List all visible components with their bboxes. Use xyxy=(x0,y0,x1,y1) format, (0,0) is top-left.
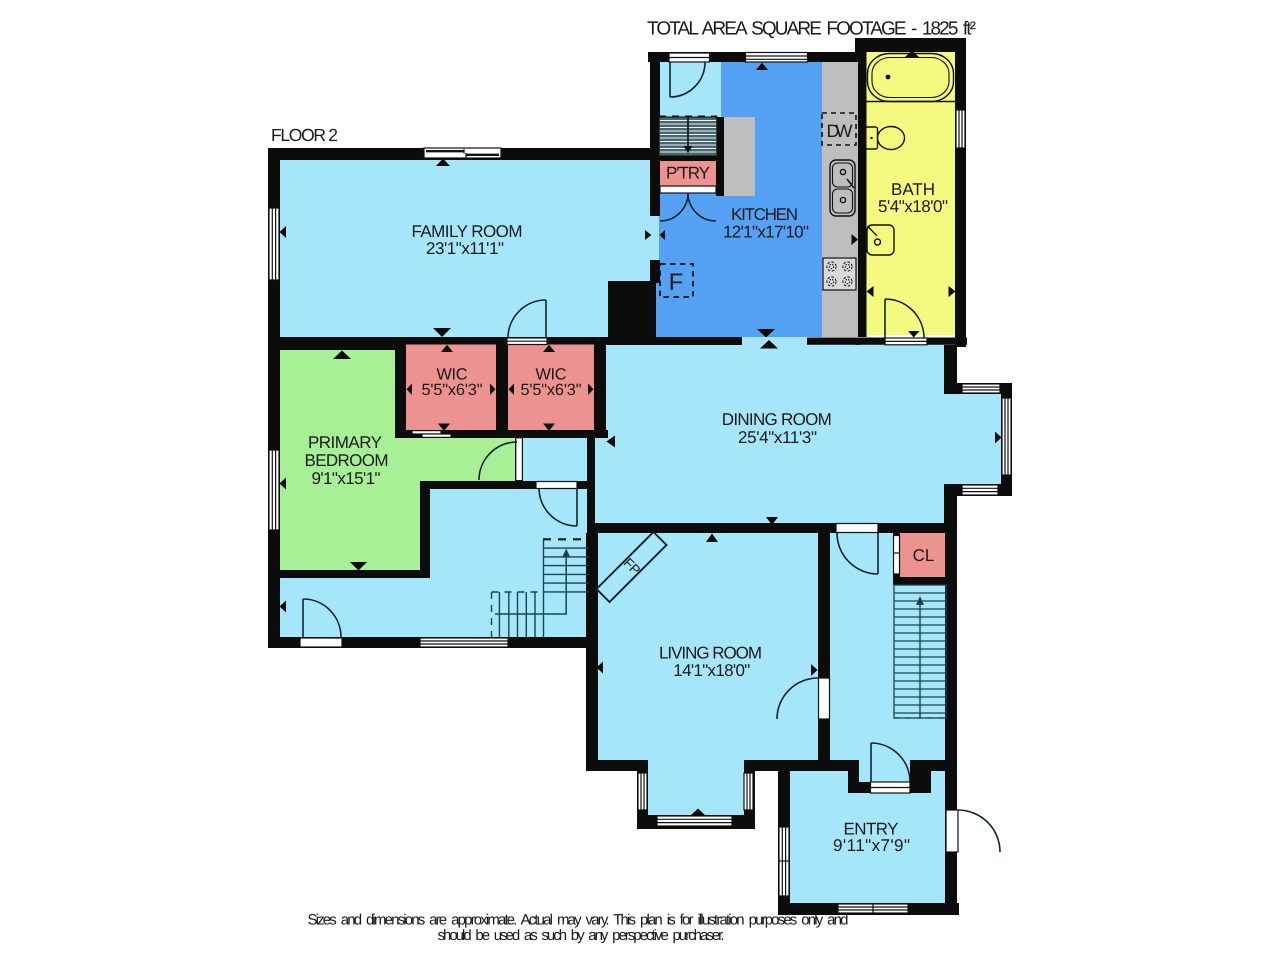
svg-text:F: F xyxy=(669,269,684,296)
svg-text:should be used as such by any: should be used as such by any perspectiv… xyxy=(438,927,725,944)
svg-text:TOTAL AREA SQUARE FOOTAGE - 18: TOTAL AREA SQUARE FOOTAGE - 1825 ft² xyxy=(647,19,976,40)
svg-text:LIVING ROOM: LIVING ROOM xyxy=(659,644,762,663)
svg-text:DINING ROOM: DINING ROOM xyxy=(722,410,832,429)
svg-text:PRIMARY: PRIMARY xyxy=(308,433,382,452)
svg-text:5'4"x18'0": 5'4"x18'0" xyxy=(878,197,948,216)
svg-text:14'1"x18'0": 14'1"x18'0" xyxy=(673,661,750,680)
svg-text:CL: CL xyxy=(913,546,935,565)
svg-text:12'1"x17'10": 12'1"x17'10" xyxy=(723,223,809,242)
svg-text:BEDROOM: BEDROOM xyxy=(305,451,389,470)
svg-text:Sizes and dimensions are appro: Sizes and dimensions are approximate. Ac… xyxy=(307,912,848,929)
svg-text:5'5"x6'3": 5'5"x6'3" xyxy=(521,381,582,399)
svg-text:23'1"x11'1": 23'1"x11'1" xyxy=(426,239,504,258)
svg-text:5'5"x6'3": 5'5"x6'3" xyxy=(422,381,483,399)
svg-text:DW: DW xyxy=(827,121,853,141)
svg-text:KITCHEN: KITCHEN xyxy=(731,205,798,224)
svg-text:P'TRY: P'TRY xyxy=(666,164,710,183)
svg-text:9'1"x15'1": 9'1"x15'1" xyxy=(312,469,381,488)
svg-text:FLOOR 2: FLOOR 2 xyxy=(271,125,338,145)
svg-text:9'11"x7'9": 9'11"x7'9" xyxy=(833,836,910,855)
svg-text:25'4"x11'3": 25'4"x11'3" xyxy=(738,428,817,447)
